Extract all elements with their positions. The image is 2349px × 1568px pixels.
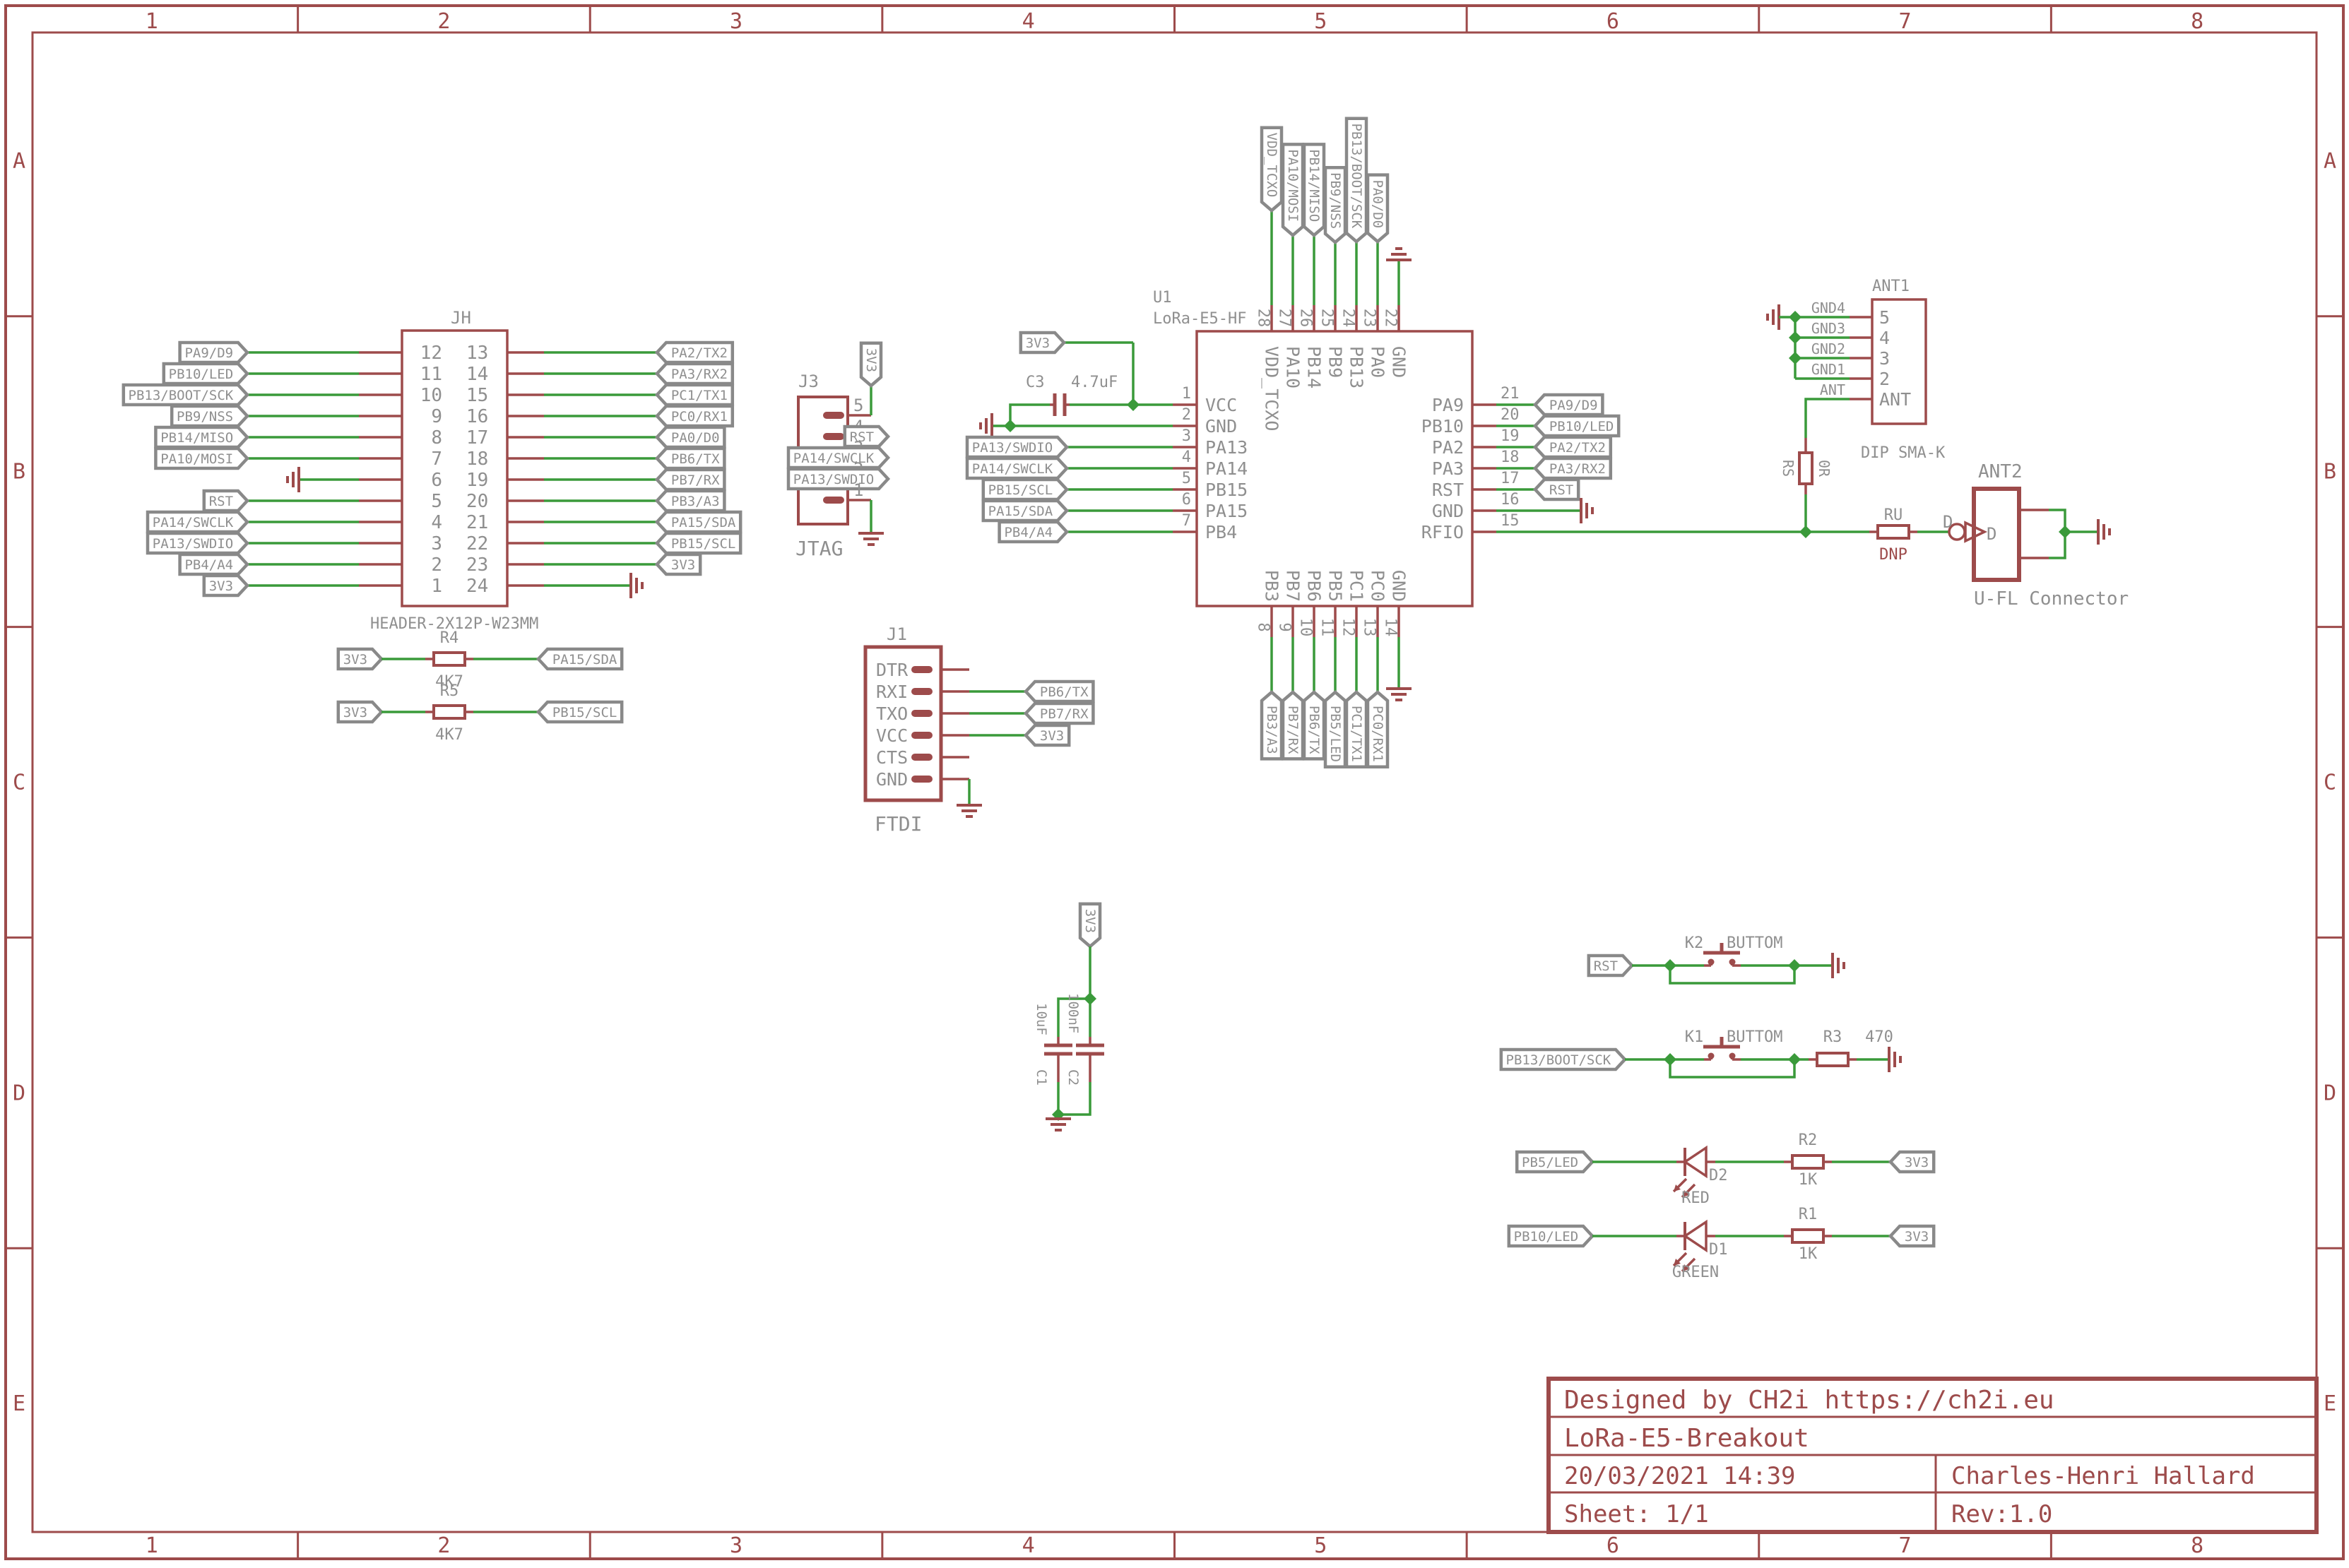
title-date: 20/03/2021 14:39 xyxy=(1564,1462,1796,1490)
frame-column-label: 4 xyxy=(1022,1533,1035,1558)
frame-column-label: 7 xyxy=(1899,9,1912,34)
resistor-body xyxy=(1817,1053,1848,1066)
u1-pin-name: PA2 xyxy=(1432,437,1464,458)
u1-pin-name: PB14 xyxy=(1304,346,1325,388)
title-project-name: LoRa-E5-Breakout xyxy=(1564,1424,1809,1453)
jh-body xyxy=(402,331,507,606)
k1-value: BUTTOM xyxy=(1727,1028,1782,1046)
led-triangle xyxy=(1685,1148,1706,1176)
d1-ref: D1 xyxy=(1709,1241,1728,1259)
jh-pin-number: 12 xyxy=(420,343,442,364)
jh-pin-number: 1 xyxy=(431,576,442,597)
u1-pin-name: PB10 xyxy=(1421,416,1464,436)
flag-text: PA15/SDA xyxy=(671,515,736,530)
u1-pin-name: GND xyxy=(1432,501,1464,521)
jh-pin-number: 7 xyxy=(431,449,442,470)
jh-pin-number: 13 xyxy=(466,343,488,364)
title-revision: Rev:1.0 xyxy=(1951,1500,2052,1528)
flag-text: PA0/D0 xyxy=(671,430,720,446)
resistor-body xyxy=(1878,525,1909,538)
flag-text: PB6/TX xyxy=(671,451,720,467)
flag-text: PB10/LED xyxy=(1549,419,1614,434)
c2-value: 100nF xyxy=(1065,993,1081,1033)
flag-text: PA9/D9 xyxy=(184,345,233,361)
j3-value: JTAG xyxy=(795,537,843,560)
jh-pin-number: 4 xyxy=(431,512,442,533)
ant1-pin-name: 5 xyxy=(1879,307,1890,328)
ant1-value: DIP SMA-K xyxy=(1861,444,1946,462)
frame-column-label: 8 xyxy=(2191,9,2203,34)
flag-text: PA3/RX2 xyxy=(671,367,728,382)
junction-dot xyxy=(1788,1053,1801,1066)
jh-pin-number: 22 xyxy=(466,533,488,554)
pin-pad xyxy=(823,433,844,440)
flag-text: PA13/SWDIO xyxy=(972,440,1053,456)
u1-pin-name: PB3 xyxy=(1262,570,1282,602)
frame-row-label: D xyxy=(13,1081,25,1105)
u1-pin-number: 27 xyxy=(1276,309,1294,328)
jh-pin-number: 8 xyxy=(431,427,442,449)
flag-text: RST xyxy=(1549,482,1573,498)
u1-pin-number: 5 xyxy=(1182,470,1191,487)
ant1-net-label: ANT xyxy=(1820,381,1845,398)
u1-pin-number: 4 xyxy=(1182,449,1191,466)
jh-pin-number: 14 xyxy=(466,364,488,385)
u1-pin-name: PB6 xyxy=(1304,570,1325,602)
junction-dot xyxy=(1789,352,1801,364)
resistor-body xyxy=(1792,1156,1823,1168)
r2-ref: R2 xyxy=(1799,1132,1818,1149)
ant2-value: U-FL Connector xyxy=(1974,588,2129,610)
u1-pin-name: PA3 xyxy=(1432,458,1464,479)
u1-pin-number: 22 xyxy=(1382,309,1400,328)
flag-text: PA14/SWCLK xyxy=(972,461,1053,477)
c1-ref: C1 xyxy=(1034,1069,1049,1086)
u1-pin-name: PC1 xyxy=(1347,570,1367,602)
pin-pad xyxy=(823,412,844,419)
frame-row-label: E xyxy=(13,1391,25,1416)
flag-text: PB14/MISO xyxy=(1306,149,1322,222)
flag-text: PB7/RX xyxy=(671,473,720,488)
ant2-ref: ANT2 xyxy=(1978,461,2023,482)
ru-value: DNP xyxy=(1879,546,1907,564)
u1-ref: U1 xyxy=(1153,289,1172,307)
k2-value: BUTTOM xyxy=(1727,934,1782,952)
u1-pin-number: 21 xyxy=(1501,385,1520,403)
j1-pin-name: DTR xyxy=(876,660,909,680)
schematic-sheet: 1122334455667788AABBCCDDEE 1213PA9/D9PA2… xyxy=(0,0,2349,1564)
u1-pin-number: 6 xyxy=(1182,491,1191,509)
pin-pad xyxy=(911,666,933,673)
u1-pin-name: PA0 xyxy=(1368,346,1388,378)
pin-pad xyxy=(911,732,933,739)
frame-column-label: 2 xyxy=(437,9,450,34)
title-author: Charles-Henri Hallard xyxy=(1951,1462,2255,1490)
flag-text: PB6/TX xyxy=(1306,706,1322,754)
flag-text: PB10/LED xyxy=(169,367,234,382)
u1-pin-name: PB7 xyxy=(1283,570,1303,602)
frame-column-label: 1 xyxy=(146,9,158,34)
c3-value: 4.7uF xyxy=(1071,374,1118,391)
u1-pin-name: PA10 xyxy=(1283,346,1303,388)
u1-pin-number: 7 xyxy=(1182,512,1191,530)
jh-pin-number: 20 xyxy=(466,491,488,512)
pin-pad xyxy=(823,497,844,504)
flag-text: PA10/MOSI xyxy=(160,451,233,467)
d2-value: RED xyxy=(1681,1189,1710,1207)
j3-pin-number: 1 xyxy=(853,480,863,500)
rs-value: 0R xyxy=(1816,460,1833,477)
flag-text: PC0/RX1 xyxy=(671,409,728,424)
wire xyxy=(1058,1082,1090,1115)
u1-pin-name: PB13 xyxy=(1347,346,1367,388)
ant2-pin-name: D xyxy=(1987,524,1996,544)
flag-text: 3V3 xyxy=(1040,728,1064,744)
r3-ref: R3 xyxy=(1823,1028,1842,1046)
flag-text: 3V3 xyxy=(1082,909,1098,933)
jh-ref: JH xyxy=(451,308,471,328)
flag-text: PB6/TX xyxy=(1040,684,1089,700)
frame-column-label: 8 xyxy=(2191,1533,2203,1558)
frame-row-label: E xyxy=(2324,1391,2336,1416)
flag-text: PB7/RX xyxy=(1285,706,1301,754)
flag-text: PA14/SWCLK xyxy=(153,515,234,530)
frame-column-label: 3 xyxy=(730,9,742,34)
ant1-net-label: GND1 xyxy=(1811,361,1845,378)
pin-pad xyxy=(911,688,933,695)
u1-pin-number: 17 xyxy=(1501,470,1520,487)
jh-pin-number: 3 xyxy=(431,533,442,554)
u1-value: LoRa-E5-HF xyxy=(1153,310,1246,328)
frame-row-label: A xyxy=(13,149,25,174)
frame-column-label: 1 xyxy=(146,1533,158,1558)
resistor-body xyxy=(1792,1230,1823,1242)
u1-pin-name: PB5 xyxy=(1325,570,1346,602)
ant1-net-label: GND4 xyxy=(1811,299,1845,316)
ant2-pin-label: D xyxy=(1943,512,1953,532)
wire xyxy=(1806,399,1850,438)
frame-column-label: 5 xyxy=(1314,9,1327,34)
flag-text: PB14/MISO xyxy=(160,430,233,446)
u1-pin-number: 3 xyxy=(1182,427,1191,445)
u1-pin-name: PB4 xyxy=(1205,522,1237,542)
resistor-body xyxy=(434,706,465,718)
r4-ref: R4 xyxy=(440,629,459,647)
flag-text: PC0/RX1 xyxy=(1370,706,1385,762)
flag-text: 3V3 xyxy=(671,557,695,573)
pin-pad xyxy=(911,710,933,717)
jh-pin-number: 11 xyxy=(420,364,442,385)
flag-text: PB13/BOOT/SCK xyxy=(1506,1052,1611,1068)
u1-pin-number: 23 xyxy=(1361,309,1378,328)
u1-pin-name: PA13 xyxy=(1205,437,1248,458)
u1-pin-number: 12 xyxy=(1339,618,1357,637)
frame-column-label: 6 xyxy=(1607,1533,1619,1558)
r5-ref: R5 xyxy=(440,682,459,700)
flag-text: PB4/A4 xyxy=(1004,525,1053,540)
j1-pin-name: TXO xyxy=(876,703,908,724)
flag-text: PB10/LED xyxy=(1514,1229,1579,1245)
jh-pin-number: 17 xyxy=(466,427,488,449)
r5-value: 4K7 xyxy=(435,726,463,744)
r2-value: 1K xyxy=(1799,1171,1818,1189)
u1-pin-number: 26 xyxy=(1297,309,1315,328)
frame-column-label: 4 xyxy=(1022,9,1035,34)
frame-row-label: C xyxy=(13,771,25,795)
u1-pin-number: 28 xyxy=(1255,309,1272,328)
d1-value: GREEN xyxy=(1672,1264,1719,1281)
k1-ref: K1 xyxy=(1685,1028,1704,1046)
junction-dot xyxy=(1789,331,1801,344)
frame-column-label: 3 xyxy=(730,1533,742,1558)
u1-pin-number: 24 xyxy=(1339,309,1357,328)
pin-pad xyxy=(911,776,933,783)
frame-row-label: D xyxy=(2324,1081,2336,1105)
flag-text: PB15/SCL xyxy=(552,705,617,720)
sheet-inner-border xyxy=(32,32,2317,1532)
ant1-pin-name: 4 xyxy=(1879,328,1890,348)
c3-ref: C3 xyxy=(1026,374,1045,391)
title-designed-by: Designed by CH2i https://ch2i.eu xyxy=(1564,1386,2054,1415)
c2-ref: C2 xyxy=(1065,1069,1081,1086)
flag-text: 3V3 xyxy=(863,348,879,372)
flag-text: PA9/D9 xyxy=(1549,398,1598,413)
rs-ref: RS xyxy=(1780,460,1797,477)
ant1-pin-name: 3 xyxy=(1879,348,1890,369)
flag-text: PA15/SDA xyxy=(552,652,617,667)
flag-text: 3V3 xyxy=(209,578,233,594)
j1-pin-name: VCC xyxy=(876,725,908,746)
flag-text: PB7/RX xyxy=(1040,706,1089,722)
frame-column-label: 7 xyxy=(1899,1533,1912,1558)
led-triangle xyxy=(1685,1222,1706,1250)
u1-pin-number: 15 xyxy=(1501,512,1520,530)
jh-pin-number: 16 xyxy=(466,406,488,427)
flag-text: RST xyxy=(209,494,233,509)
flag-text: PB5/LED xyxy=(1327,706,1343,762)
j1-pin-name: RXI xyxy=(876,682,908,702)
u1-pin-name: GND xyxy=(1205,416,1237,436)
jh-pin-number: 9 xyxy=(431,406,442,427)
u1-pin-number: 14 xyxy=(1382,618,1400,637)
flag-text: PA2/TX2 xyxy=(1549,440,1606,456)
u1-pin-number: 18 xyxy=(1501,449,1520,466)
u1-pin-number: 2 xyxy=(1182,406,1191,424)
j1-value: FTDI xyxy=(875,812,922,836)
jh-pin-number: 5 xyxy=(431,491,442,512)
schematic-canvas: 1122334455667788AABBCCDDEE 1213PA9/D9PA2… xyxy=(0,0,2349,1564)
j1-ref: J1 xyxy=(887,624,907,644)
flag-text: PB9/NSS xyxy=(177,409,233,424)
junction-dot xyxy=(1788,959,1801,972)
title-sheet-number: Sheet: 1/1 xyxy=(1564,1500,1709,1528)
jh-pin-number: 19 xyxy=(466,470,488,491)
jh-pin-number: 15 xyxy=(466,385,488,406)
pin-pad xyxy=(911,754,933,761)
flag-text: 3V3 xyxy=(343,652,367,667)
jh-pin-number: 6 xyxy=(431,470,442,491)
jh-pin-number: 10 xyxy=(420,385,442,406)
flag-text: PC1/TX1 xyxy=(1349,706,1364,762)
u1-pin-name: RST xyxy=(1432,480,1464,500)
flag-text: PA2/TX2 xyxy=(671,345,728,361)
frame-row-label: A xyxy=(2324,149,2336,174)
u1-pin-name: GND xyxy=(1389,570,1409,602)
u1-pin-number: 11 xyxy=(1318,618,1336,637)
u1-pin-name: VDD_TCXO xyxy=(1262,346,1282,431)
flag-text: VDD_TCXO xyxy=(1264,133,1279,198)
u1-pin-name: RFIO xyxy=(1421,522,1464,542)
frame-row-label: B xyxy=(2324,460,2336,485)
u1-pin-number: 16 xyxy=(1501,491,1520,509)
u1-pin-name: PA9 xyxy=(1432,395,1464,415)
ant1-pin-name: ANT xyxy=(1879,389,1911,410)
u1-pin-number: 1 xyxy=(1182,385,1191,403)
jh-pin-number: 23 xyxy=(466,554,488,576)
ant1-pin-name: 2 xyxy=(1879,369,1890,389)
ant1-net-label: GND3 xyxy=(1811,320,1845,337)
jh-pin-number: 2 xyxy=(431,554,442,576)
frame-row-label: C xyxy=(2324,771,2336,795)
frame-column-label: 6 xyxy=(1607,9,1619,34)
u1-pin-name: PA14 xyxy=(1205,458,1248,479)
u1-pin-name: PB15 xyxy=(1205,480,1248,500)
jh-pin-number: 24 xyxy=(466,576,488,597)
j3-ref: J3 xyxy=(798,372,819,391)
u1-pin-name: PC0 xyxy=(1368,570,1388,602)
j1-pin-name: CTS xyxy=(876,747,908,768)
junction-dot xyxy=(1789,311,1801,323)
u1-pin-number: 19 xyxy=(1501,427,1520,445)
u1-pin-number: 9 xyxy=(1276,622,1294,631)
flag-text: 3V3 xyxy=(1026,335,1050,351)
flag-text: PA10/MOSI xyxy=(1285,149,1301,222)
flag-text: PA0/D0 xyxy=(1370,179,1385,228)
resistor-body xyxy=(1799,453,1812,484)
u1-pin-name: PB9 xyxy=(1325,346,1346,378)
u1-pin-number: 10 xyxy=(1297,618,1315,637)
flag-text: PA3/RX2 xyxy=(1549,461,1606,477)
frame-row-label: B xyxy=(13,460,25,485)
frame-column-label: 2 xyxy=(437,1533,450,1558)
r3-value: 470 xyxy=(1865,1028,1893,1046)
flag-text: PB4/A4 xyxy=(184,557,233,573)
flag-text: PB15/SCL xyxy=(988,482,1053,498)
r1-value: 1K xyxy=(1799,1245,1818,1263)
flag-text: PB13/BOOT/SCK xyxy=(129,388,234,403)
u1-pin-name: PA15 xyxy=(1205,501,1248,521)
flag-text: PB5/LED xyxy=(1522,1155,1578,1170)
wire xyxy=(1010,405,1050,426)
flag-text: PB3/A3 xyxy=(671,494,720,509)
r1-ref: R1 xyxy=(1799,1206,1818,1223)
u1-pin-name: GND xyxy=(1389,346,1409,378)
k2-ref: K2 xyxy=(1685,934,1704,952)
j1-pin-name: GND xyxy=(876,769,908,790)
frame-column-label: 5 xyxy=(1314,1533,1327,1558)
u1-pin-number: 20 xyxy=(1501,406,1520,424)
jh-pin-number: 18 xyxy=(466,449,488,470)
flag-text: 3V3 xyxy=(1905,1155,1929,1170)
flag-text: PB9/NSS xyxy=(1327,172,1343,229)
j3-pin-number: 5 xyxy=(853,396,863,415)
flag-text: PB13/BOOT/SCK xyxy=(1349,124,1364,229)
c1-value: 10uF xyxy=(1034,1003,1049,1035)
flag-text: RST xyxy=(1594,958,1618,974)
title-block: Designed by CH2i https://ch2i.eu LoRa-E5… xyxy=(1549,1379,2317,1532)
flag-text: PA15/SDA xyxy=(988,504,1053,519)
sheet-outer-border xyxy=(6,6,2343,1559)
flag-text: 3V3 xyxy=(343,705,367,720)
wire xyxy=(1670,966,1794,983)
d2-ref: D2 xyxy=(1709,1167,1728,1184)
wire xyxy=(1670,1059,1794,1077)
ant1-net-label: GND2 xyxy=(1811,340,1845,357)
resistor-body xyxy=(434,653,465,665)
jh-pin-number: 21 xyxy=(466,512,488,533)
ant1-ref: ANT1 xyxy=(1872,278,1910,295)
ru-ref: RU xyxy=(1884,506,1903,524)
u1-pin-number: 8 xyxy=(1255,622,1272,631)
flag-text: PB15/SCL xyxy=(671,536,736,552)
flag-text: PA13/SWDIO xyxy=(153,536,233,552)
flag-text: PB3/A3 xyxy=(1264,706,1279,754)
flag-text: 3V3 xyxy=(1905,1229,1929,1245)
flag-text: PC1/TX1 xyxy=(671,388,728,403)
u1-pin-number: 13 xyxy=(1361,618,1378,637)
u1-pin-number: 25 xyxy=(1318,309,1336,328)
u1-pin-name: VCC xyxy=(1205,395,1237,415)
